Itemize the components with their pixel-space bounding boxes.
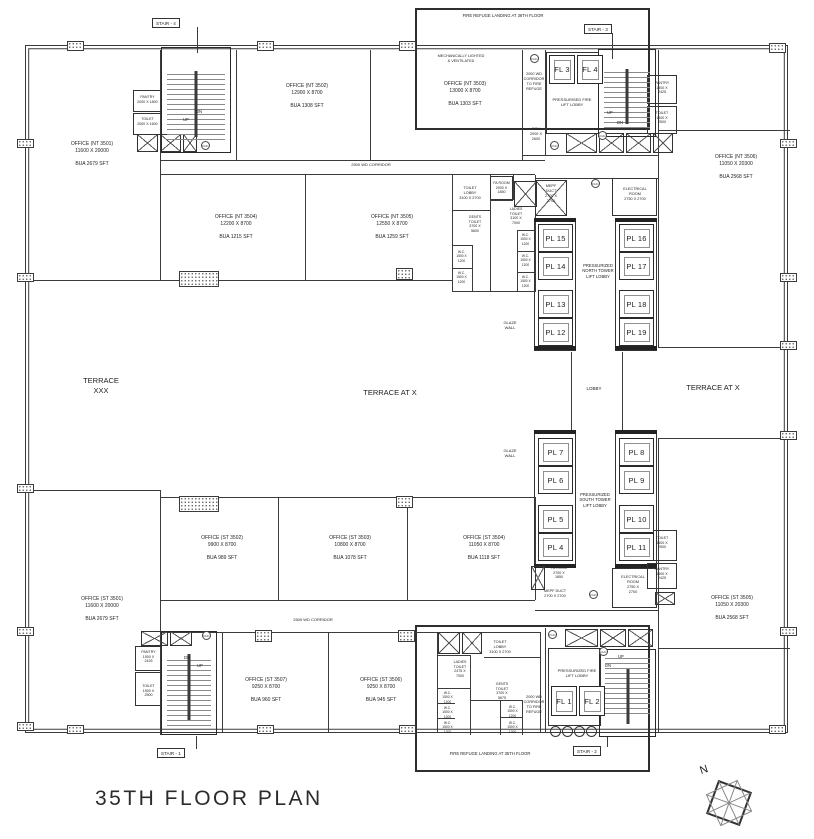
- shaft-xbox: [438, 632, 460, 654]
- lift-pl12: PL 12: [538, 318, 573, 346]
- column-marker: [399, 725, 416, 734]
- lift-label: PL 18: [626, 300, 646, 309]
- shaft-xbox: [655, 592, 675, 605]
- wc-label: W.C. 1500 X 1200: [503, 705, 522, 718]
- ech-room: ECH 2000 X 2600: [521, 127, 551, 142]
- wall-cap: [615, 430, 657, 434]
- wall-segment: [517, 272, 535, 273]
- wall-segment: [658, 130, 659, 348]
- wall-segment: [484, 657, 540, 658]
- wall-segment: [500, 700, 501, 735]
- column-marker: [257, 41, 274, 51]
- lift-pl19: PL 19: [619, 318, 654, 346]
- lift-pl9: PL 9: [619, 466, 654, 494]
- lift-label: PL 19: [626, 328, 646, 337]
- stair1-dn: DN: [184, 655, 190, 660]
- lift-pl16: PL 16: [619, 224, 654, 252]
- toilet-lobby-north-label: TOILET LOBBY 3100 X 2700: [449, 186, 491, 201]
- toilet-nw-label: TOILET 2000 X 1600: [133, 117, 162, 126]
- office-nt3501: OFFICE (NT 3501) 11600 X 20000 BUA 2679 …: [47, 141, 137, 167]
- office-nt3502: OFFICE (NT 3502) 12900 X 8700 BUA 1308 S…: [262, 83, 352, 109]
- wall-cap: [615, 218, 657, 222]
- stair-4: [161, 47, 231, 153]
- wall-segment: [540, 632, 541, 733]
- office-st3506: OFFICE (ST 3506) 9250 X 8700 BUA 945 SFT: [336, 677, 426, 703]
- wall-segment: [328, 632, 329, 733]
- stair4-up: UP: [183, 117, 189, 122]
- office-st3501: OFFICE (ST 3501) 11600 X 20000 BUA 2679 …: [57, 596, 147, 622]
- wc-label: W.C. 1500 X 1200: [438, 721, 457, 734]
- corridor-to-refuge-top: 2000 WD CORRIDOR TO FIRE REFUGE: [519, 72, 549, 92]
- toilet-sw-label: TOILET 1500 X 2500: [135, 684, 162, 698]
- lift-label: PL 16: [626, 234, 646, 243]
- wall-segment: [305, 175, 306, 280]
- column-marker: [17, 484, 34, 493]
- lift-pl6: PL 6: [538, 466, 573, 494]
- lift-fl3: FL 3: [549, 55, 575, 84]
- office-st3502: OFFICE (ST 3502) 9900 X 8700 BUA 989 SFT: [177, 535, 267, 561]
- shaft-xbox: [514, 181, 537, 207]
- wc-label: W.C. 1500 X 1200: [516, 275, 535, 288]
- wall-segment: [490, 200, 513, 201]
- column-marker: [396, 268, 413, 280]
- lift-label: PL 11: [627, 543, 647, 552]
- lift-pl4: PL 4: [538, 533, 573, 561]
- glaze-wall-label: GLAZE WALL: [498, 320, 522, 330]
- stair1-up: UP: [197, 663, 203, 668]
- column-marker: [257, 725, 274, 734]
- shaft-xbox: [653, 133, 673, 153]
- glaze-wall-label: GLAZE WALL: [498, 448, 522, 458]
- wc-label: W.C. 1500 X 1200: [438, 691, 457, 704]
- wall-segment: [236, 50, 237, 160]
- office-st3503: OFFICE (ST 3503) 10800 X 8700 BUA 1078 S…: [305, 535, 395, 561]
- stair2-tag: STAIR - 2: [573, 746, 601, 756]
- office-st3505: OFFICE (ST 3505) 11050 X 20300 BUA 2568 …: [687, 595, 777, 621]
- shaft-xbox: [600, 629, 626, 647]
- leader-line: [607, 737, 608, 747]
- wall-cap: [534, 430, 576, 434]
- wall-segment: [658, 648, 790, 649]
- lift-label: PL 8: [629, 448, 645, 457]
- fhc-marker: FHC: [598, 131, 607, 140]
- wall-segment: [160, 632, 540, 633]
- column-marker: [179, 271, 219, 287]
- column-marker: [17, 627, 34, 636]
- wall-segment: [517, 230, 535, 231]
- north-lift-lobby-label: PRESSURIZED NORTH TOWER LIFT LOBBY: [570, 263, 626, 279]
- stair3-dn: DN: [617, 120, 623, 125]
- gents-toilet-south-label: GENTS TOILET 3700 X 5675: [487, 682, 517, 701]
- lift-pl5: PL 5: [538, 505, 573, 533]
- fire-lift-lobby-top-label: PRESSURISED FIRE LIFT LOBBY: [544, 97, 600, 107]
- column-marker: [399, 41, 416, 51]
- shaft-circle: [574, 726, 585, 737]
- north-arrow-icon: [696, 770, 762, 836]
- stair3-up: UP: [607, 110, 613, 115]
- stair-1: [161, 631, 217, 735]
- corridor-to-refuge-bottom: 2000 WD CORRIDOR TO FIRE REFUGE: [519, 695, 549, 715]
- wall-segment: [571, 352, 572, 432]
- wc-label: W.C. 1500 X 1200: [452, 250, 471, 263]
- column-marker: [17, 273, 34, 282]
- wc-label: W.C. 1500 X 1200: [452, 271, 471, 284]
- lift-label: PL 13: [545, 300, 565, 309]
- fhc-marker: FHC: [548, 630, 557, 639]
- lift-label: PL 4: [548, 543, 564, 552]
- office-nt3503: OFFICE (NT 3503) 13000 X 8700 BUA 1303 S…: [420, 81, 510, 107]
- column-marker: [769, 43, 786, 53]
- lift-label: FL 4: [582, 65, 598, 74]
- office-st3507: OFFICE (ST 3507) 9250 X 8700 BUA 960 SFT: [221, 677, 311, 703]
- lift-pl18: PL 18: [619, 290, 654, 318]
- toilet-lobby-south-label: TOILET LOBBY 3100 X 2700: [479, 640, 521, 655]
- column-marker: [780, 139, 797, 148]
- wc-label: W.C. 1500 X 1200: [516, 254, 535, 267]
- wall-segment: [452, 291, 535, 292]
- shaft-xbox: [566, 133, 597, 153]
- lift-pl7: PL 7: [538, 438, 573, 466]
- wall-segment: [517, 251, 535, 252]
- stair2-dn: DN: [605, 663, 611, 668]
- wall-segment: [452, 210, 490, 211]
- lift-label: FL 2: [584, 697, 600, 706]
- shaft-xbox: [137, 134, 158, 152]
- leader-line: [196, 736, 197, 749]
- wall-segment: [472, 245, 473, 292]
- lift-pl14: PL 14: [538, 252, 573, 280]
- wc-label: W.C. 1500 X 1200: [438, 706, 457, 719]
- pantry-nw-label: PANTRY 2000 X 1800: [133, 95, 162, 104]
- shaft-circle: [550, 726, 561, 737]
- wall-segment: [407, 497, 408, 600]
- lift-label: FL 3: [554, 65, 570, 74]
- wall-segment: [622, 352, 623, 432]
- wall-segment: [278, 497, 279, 600]
- column-marker: [398, 630, 415, 642]
- fhc-marker: FHC: [201, 141, 210, 150]
- pantry-sw-label: PANTRY 1500 X 2425: [135, 650, 162, 664]
- wall-segment: [25, 280, 452, 281]
- refuge-note-top: FIRE REFUGE LANDING AT 36TH FLOOR: [428, 13, 578, 18]
- terrace-left: TERRACE XXX: [56, 376, 146, 396]
- shaft-circle: [562, 726, 573, 737]
- terrace-center: TERRACE AT X: [330, 388, 450, 398]
- wall-segment: [658, 648, 659, 733]
- terrace-right: TERRACE AT X: [653, 383, 773, 393]
- column-marker: [780, 273, 797, 282]
- lift-label: PL 14: [545, 262, 565, 271]
- fa-room-north-label: FA ROOM 2000 X 1850: [489, 181, 514, 195]
- column-marker: [780, 627, 797, 636]
- wc-label: W.C. 1500 X 1200: [516, 233, 535, 246]
- lift-label: PL 6: [548, 476, 564, 485]
- corridor-bottom: 2500 WD CORRIDOR: [273, 617, 353, 622]
- column-marker: [780, 341, 797, 350]
- stair4-tag: STAIR - 4: [152, 18, 180, 28]
- electrical-room-north-label: ELECTRICAL ROOM 2750 X 2700: [612, 187, 658, 202]
- ladies-toilet-south-label: LADIES TOILET 2475 X 7000: [445, 660, 475, 679]
- lift-pl10: PL 10: [619, 505, 654, 533]
- lobby-label: LOBBY: [574, 386, 614, 392]
- refuge-note-bottom: FIRE REFUGE LANDING AT 35TH FLOOR: [415, 751, 565, 756]
- pantry-se-label: PANTRY 1500 X 2425: [648, 567, 676, 581]
- fhc-marker: FHC: [550, 141, 559, 150]
- column-marker: [67, 41, 84, 51]
- lift-fl4: FL 4: [577, 55, 603, 84]
- fhc-marker: FHC: [589, 590, 598, 599]
- wall-cap: [534, 218, 576, 222]
- lift-fl2: FL 2: [579, 686, 605, 716]
- lift-label: PL 15: [545, 234, 565, 243]
- corridor-top: 2500 WD CORRIDOR: [331, 162, 411, 167]
- column-marker: [17, 722, 34, 731]
- lift-label: PL 5: [548, 515, 564, 524]
- lift-pl15: PL 15: [538, 224, 573, 252]
- mepf-duct-north-label: MEPF DUCT 2700 X 2700: [536, 184, 566, 204]
- wall-segment: [545, 628, 546, 733]
- fhc-marker: FHC: [591, 179, 600, 188]
- gents-toilet-north-label: GENTS TOILET 3700 X 5600: [460, 215, 490, 234]
- wall-segment: [658, 130, 790, 131]
- office-nt3504: OFFICE (NT 3504) 12200 X 8700 BUA 1215 S…: [191, 214, 281, 240]
- office-st3504: OFFICE (ST 3504) 11050 X 8700 BUA 1118 S…: [439, 535, 529, 561]
- column-marker: [780, 431, 797, 440]
- stair4-dn: DN: [196, 109, 202, 114]
- wall-segment: [25, 490, 160, 491]
- column-marker: [179, 496, 219, 512]
- stair1-tag: STAIR - 1: [157, 748, 185, 758]
- floor-plan: PL 15 PL 14 PL 13 PL 12 PL 16 PL 17 PL 1…: [0, 0, 814, 839]
- lift-pl8: PL 8: [619, 438, 654, 466]
- wall-segment: [437, 655, 470, 656]
- lift-label: PL 12: [545, 328, 565, 337]
- wall-segment: [658, 347, 790, 348]
- wall-segment: [535, 610, 658, 611]
- stair2-up: UP: [618, 654, 624, 659]
- column-marker: [17, 139, 34, 148]
- wall-segment: [658, 438, 790, 439]
- stair3-tag: STAIR - 3: [584, 24, 612, 34]
- fhc-marker: FHC: [599, 647, 608, 656]
- fa-room-south-label: FA ROOM 2700 X 1850: [546, 566, 572, 580]
- toilet-ne-label: TOILET 1500 X 2500: [648, 111, 676, 125]
- fire-lift-lobby-bottom-label: PRESSURIZED FIRE LIFT LOBBY: [549, 668, 605, 678]
- lift-label: PL 7: [548, 448, 564, 457]
- shaft-xbox: [531, 566, 545, 590]
- toilet-se-label: TOILET 1500 X 2500: [648, 536, 676, 550]
- wall-segment: [437, 688, 470, 689]
- lift-pl13: PL 13: [538, 290, 573, 318]
- lift-fl1: FL 1: [551, 686, 577, 716]
- wall-segment: [522, 50, 523, 160]
- mepf-duct-south-label: MEPF DUCT 2700 X 2700: [531, 589, 579, 599]
- office-nt3505: OFFICE (NT 3505) 12550 X 8700 BUA 1259 S…: [347, 214, 437, 240]
- lift-label: PL 9: [629, 476, 645, 485]
- column-marker: [769, 725, 786, 734]
- lift-label: FL 1: [556, 697, 572, 706]
- wall-segment: [370, 50, 371, 160]
- wall-cap: [615, 346, 657, 350]
- wc-label: W.C. 1500 X 1200: [503, 721, 522, 734]
- lift-label: PL 10: [626, 515, 646, 524]
- wall-segment: [160, 174, 535, 175]
- lift-label: PL 17: [626, 262, 646, 271]
- wall-segment: [452, 245, 472, 246]
- column-marker: [396, 496, 413, 508]
- wall-segment: [160, 600, 535, 601]
- fhc-marker: FHC: [530, 54, 539, 63]
- fhc-marker: FHC: [202, 631, 211, 640]
- pantry-ne-label: PANTRY 1500 X 2425: [648, 81, 676, 95]
- shaft-circle: [586, 726, 597, 737]
- wall-segment: [522, 155, 658, 156]
- mech-vent-note: MECHANICALLY LIGHTED & VENTILATED: [416, 54, 506, 64]
- shaft-xbox: [628, 629, 653, 647]
- wall-segment: [452, 268, 472, 269]
- office-nt3506: OFFICE (NT 3506) 11050 X 20300 BUA 2568 …: [691, 154, 781, 180]
- ladies-toilet-north-label: LADIES TOILET 3100 X 7000: [501, 207, 531, 226]
- column-marker: [67, 725, 84, 734]
- south-lift-lobby-label: PRESSURIZED SOUTH TOWER LIFT LOBBY: [567, 492, 623, 508]
- wall-cap: [534, 346, 576, 350]
- column-marker: [255, 630, 272, 642]
- page-title: 35TH FLOOR PLAN: [95, 787, 323, 811]
- shaft-xbox: [565, 629, 598, 647]
